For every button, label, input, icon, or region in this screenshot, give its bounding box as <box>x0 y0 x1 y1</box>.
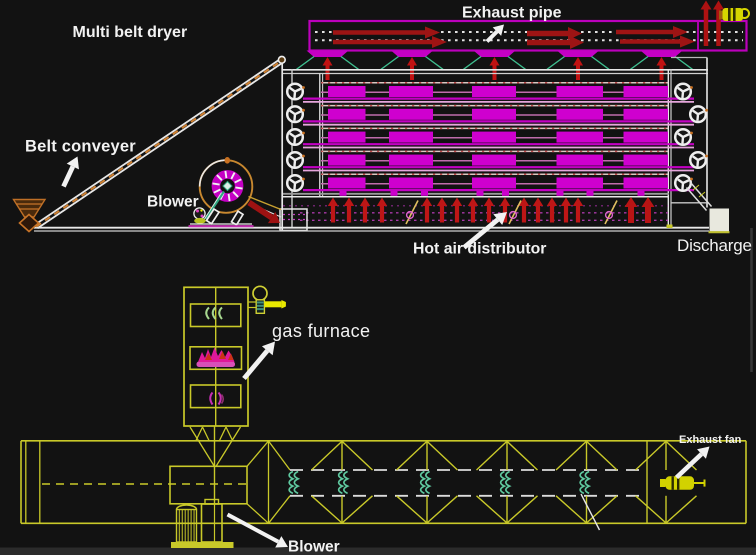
svg-text:Belt conveyer: Belt conveyer <box>25 138 136 156</box>
svg-text:Blower: Blower <box>147 194 199 211</box>
svg-text:Discharge: Discharge <box>677 236 752 255</box>
svg-text:Exhaust fan: Exhaust fan <box>679 434 742 446</box>
svg-text:Hot air distributor: Hot air distributor <box>413 241 546 258</box>
svg-text:gas furnace: gas furnace <box>272 321 370 341</box>
svg-text:Blower: Blower <box>288 539 340 555</box>
svg-text:Multi belt dryer: Multi belt dryer <box>73 24 188 41</box>
svg-text:Exhaust pipe: Exhaust pipe <box>462 5 562 22</box>
